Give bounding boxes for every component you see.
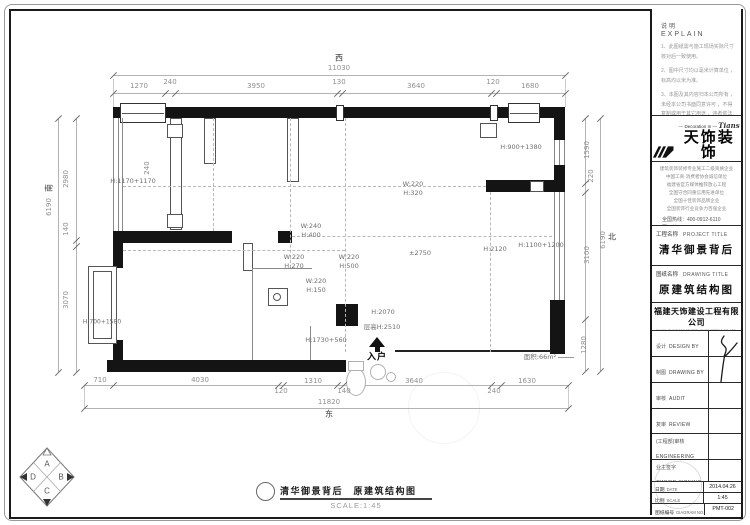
credential-lines: 建筑装饰装修专业施工二级资质企业中国工商·消费者协会诚信单位福建省官方媒体推荐放… (652, 165, 741, 213)
plan-label: 240 (163, 78, 176, 86)
exp-note: 1、此图纸需与施工现场实际尺寸 核对后一致使用。 (661, 43, 736, 62)
footer-circle-icon (256, 482, 275, 501)
window-opening (336, 105, 344, 121)
plan-label: 6190 (599, 231, 607, 249)
explain-section: 说明 EXPLAIN 1、此图纸需与施工现场实际尺寸 核对后一致使用。2、图中尺… (652, 9, 741, 116)
plan-label: H:500 (339, 262, 358, 270)
signoff-table: 设计DESIGN BY制图DRAWING BY审核AUDIT复审REVIEW(工… (652, 331, 741, 482)
compass-letter-b: B (58, 473, 63, 482)
plan-label: 3950 (247, 82, 265, 90)
window-opening (508, 103, 540, 123)
faint-stamp-titleblock (654, 461, 702, 509)
wall-segment (554, 107, 565, 140)
plan-label: W:220 (284, 253, 305, 261)
partition-outline (243, 243, 253, 271)
credentials-section: 建筑装饰装修专业施工二级资质企业中国工商·消费者协会诚信单位福建省官方媒体推荐放… (652, 162, 741, 226)
plan-label: H:1170+1170 (110, 177, 156, 185)
thin-line (564, 192, 565, 300)
fixture-shape (348, 361, 364, 371)
wall-segment (107, 360, 346, 372)
thin-line (84, 385, 85, 408)
fixture-shape (370, 364, 386, 380)
signature-cell (708, 409, 741, 433)
wall-segment (113, 231, 232, 243)
plan-label: H:900+1380 (500, 143, 541, 151)
wall-segment (486, 180, 565, 192)
dimension-line (113, 75, 565, 76)
drawing-sheet: 西110301270240395013036401201680710403012… (0, 0, 750, 525)
drawing-label-en: DRAWING TITLE (683, 272, 728, 278)
window-opening (120, 103, 166, 123)
cred-line: 福建省官方媒体推荐放心工程 (652, 181, 741, 189)
plan-label: 南 (44, 184, 55, 192)
partition-outline (204, 118, 216, 164)
contact-lines: 全国热线：400-0912-6110网 址：www.fj-tians.com天猫… (652, 216, 741, 226)
compass-letter-a: A (44, 460, 49, 469)
tians-logo-icon (652, 143, 674, 160)
partition-outline (93, 271, 112, 339)
thin-line (559, 140, 560, 165)
plan-label: 3100 (583, 246, 591, 264)
plan-label: 140 (62, 222, 70, 235)
thin-line (568, 385, 569, 408)
partition-outline (530, 181, 544, 192)
beam-dashed-line (123, 250, 345, 251)
beam-dashed-line (213, 118, 214, 231)
thin-line (118, 118, 119, 231)
plan-label: 北 (608, 232, 616, 243)
plan-label: ±2750 (409, 249, 431, 257)
thin-line (564, 140, 565, 165)
partition-outline (480, 123, 497, 138)
wall-segment (113, 243, 123, 268)
project-title: 清华御景背后 (652, 242, 741, 257)
plan-label: 东 (325, 409, 333, 420)
plan-label: 1590 (583, 141, 591, 159)
project-label-en: PROJECT TITLE (683, 232, 728, 238)
plan-label: H:2070 (371, 308, 395, 316)
footer-underline (280, 498, 432, 500)
compass-letter-d: D (30, 473, 36, 482)
signoff-row: 复审REVIEW (652, 409, 741, 434)
drawing-label-cn: 图纸名称 (656, 270, 678, 278)
title-block: 说明 EXPLAIN 1、此图纸需与施工现场实际尺寸 核对后一致使用。2、图中尺… (650, 9, 741, 515)
designer-signature (706, 333, 740, 385)
plan-label: H:400 (301, 231, 320, 239)
plan-label: 120 (486, 78, 499, 86)
direction-compass: A B C D (16, 444, 78, 510)
plan-label: 1310 (304, 377, 322, 385)
plan-label: H:270 (284, 262, 303, 270)
thin-line (554, 140, 555, 165)
dimension-line (84, 385, 568, 386)
meter-box (268, 288, 288, 306)
cred-line: 全国十佳装饰品牌企业 (652, 197, 741, 205)
window-opening (490, 105, 498, 121)
signature-cell (708, 383, 741, 408)
plan-label: 3070 (62, 291, 70, 309)
plan-label: 3640 (405, 377, 423, 385)
plan-label: H:150 (306, 286, 325, 294)
dimension-line (58, 118, 59, 372)
partition-outline (167, 214, 183, 228)
contact-line: 全国热线：400-0912-6110 (652, 216, 741, 224)
thin-line (558, 357, 574, 358)
brand-name-cn: 天饰装饰 (677, 130, 741, 160)
plan-label: H:2120 (483, 245, 507, 253)
beam-dashed-line (123, 186, 486, 187)
plan-label: 1630 (518, 377, 536, 385)
plan-label: H:700+1580 (83, 319, 121, 326)
plan-label: 130 (332, 78, 345, 86)
plan-label: 1680 (521, 82, 539, 90)
plan-label: 4030 (191, 376, 209, 384)
plan-label: 11030 (328, 64, 350, 72)
plan-label: 1280 (580, 336, 588, 354)
plan-label: 240 (143, 161, 151, 174)
entry-arrow-icon (369, 337, 385, 347)
explain-title-en: EXPLAIN (661, 31, 736, 38)
company-name: 福建天饰建设工程有限公司 (652, 306, 741, 328)
wall-segment (336, 304, 358, 326)
beam-dashed-line (290, 118, 291, 268)
partition-outline (167, 124, 183, 138)
compass-letter-c: C (44, 487, 50, 496)
plan-label: 11820 (318, 398, 340, 406)
footer-drawing-title: 清华御景背后 原建筑结构图 (280, 484, 417, 497)
plan-label: H:320 (403, 189, 422, 197)
plan-label: 710 (93, 376, 106, 384)
thin-line (122, 118, 123, 231)
compass-diamond-icon (16, 444, 78, 510)
plan-label: W:220 (306, 277, 327, 285)
exp-note: 2、图中尺寸均以毫米计算单位 ，标高均以米为准。 (661, 67, 736, 86)
beam-dashed-line (345, 118, 346, 352)
signature-cell (708, 460, 741, 481)
cred-line: 建筑装饰装修专业施工二级资质企业 (652, 165, 741, 173)
beam-dashed-line (490, 192, 491, 352)
signoff-row: (工程部)审核ENGINEERING (652, 434, 741, 460)
plan-label: 3640 (407, 82, 425, 90)
plan-label: H:1100+1200 (518, 241, 564, 249)
project-label-cn: 工程名称 (656, 230, 678, 238)
footer-scale: SCALE:1:45 (280, 501, 432, 510)
wall-segment (550, 300, 565, 354)
plan-label: W:220 (339, 253, 360, 261)
exp-note: 3、本图及其内容归本公司所有 ，未经本公司书面同意许可 ，不得复制或用于其它用途… (661, 91, 736, 116)
plan-label: 层高H:2510 (364, 321, 401, 331)
partition-outline (287, 118, 299, 182)
cred-line: 全国守合同重信用先进单位 (652, 189, 741, 197)
plan-label: 入户 (367, 350, 387, 363)
plan-label: 2980 (62, 170, 70, 188)
cred-line: 中国工商·消费者协会诚信单位 (652, 173, 741, 181)
plan-label: 1270 (130, 82, 148, 90)
signature-cell (708, 434, 741, 459)
drawing-title-section: 图纸名称 DRAWING TITLE 原建筑结构图 (652, 266, 741, 303)
plan-label: 面积:66m² (524, 351, 556, 361)
project-title-section: 工程名称 PROJECT TITLE 清华御景背后 (652, 226, 741, 266)
cred-line: 全国装饰行业竞争力百强企业 (652, 205, 741, 213)
signoff-row: 审核AUDIT (652, 383, 741, 409)
explain-title-cn: 说明 (661, 21, 736, 30)
company-section: 福建天饰建设工程有限公司 FUJIAN TIANS DECORATION ENG… (652, 303, 741, 331)
plan-label: W:240 (301, 222, 322, 230)
plan-label: 6190 (45, 198, 53, 216)
plan-label: 西 (335, 53, 343, 64)
fixture-shape (386, 372, 396, 382)
plan-label: W:220 (403, 180, 424, 188)
plan-label: H:1730+560 (305, 336, 346, 344)
thin-line (113, 118, 114, 231)
thin-line (252, 268, 253, 360)
drawing-title: 原建筑结构图 (652, 282, 741, 297)
beam-dashed-line (292, 236, 552, 237)
explain-notes: 1、此图纸需与施工现场实际尺寸 核对后一致使用。2、图中尺寸均以毫米计算单位 ，… (661, 43, 736, 116)
brand-logo-section: — Decoration In — Tians 天饰装饰 —— 事 事 饰 空 … (652, 116, 741, 162)
